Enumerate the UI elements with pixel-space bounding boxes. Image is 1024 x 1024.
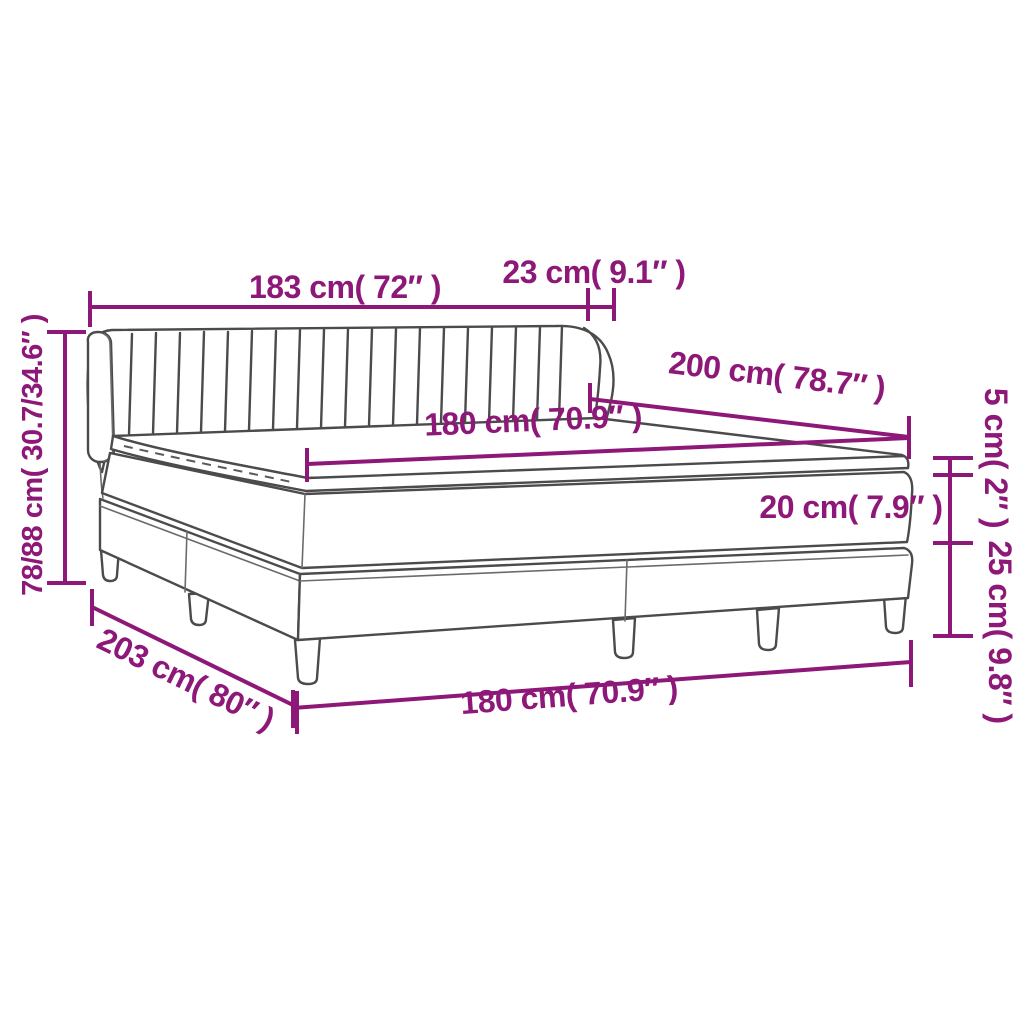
label-headboard-depth: 23 cm( 9.1″ ) — [502, 254, 685, 290]
label-topper-thickness: 5 cm( 2″ ) — [978, 388, 1014, 528]
leg-back-right — [884, 595, 906, 633]
leg-front-corner — [295, 638, 320, 684]
leg-front-middle — [613, 618, 635, 658]
label-headboard-width: 183 cm( 72″ ) — [249, 269, 441, 305]
label-headboard-height: 78/88 cm( 30.7/34.6″ ) — [17, 314, 49, 596]
label-base-height: 25 cm( 9.8″ ) — [982, 540, 1018, 723]
dim-headboard-height: 78/88 cm( 30.7/34.6″ ) — [17, 314, 86, 596]
label-base-width: 180 cm( 70.9″ ) — [459, 669, 679, 721]
dim-headboard-width: 183 cm( 72″ ) 23 cm( 9.1″ ) — [88, 254, 686, 327]
label-total-length: 203 cm( 80″ ) — [92, 621, 280, 738]
label-bed-length: 200 cm( 78.7″ ) — [667, 344, 887, 406]
diagram-canvas: 183 cm( 72″ ) 23 cm( 9.1″ ) 78/88 cm( 30… — [0, 0, 1024, 1024]
dim-base-width: 180 cm( 70.9″ ) — [293, 640, 911, 728]
bed-dimension-diagram: 183 cm( 72″ ) 23 cm( 9.1″ ) 78/88 cm( 30… — [0, 0, 1024, 1024]
label-mattress-thickness: 20 cm( 7.9″ ) — [759, 489, 942, 525]
leg-front-right — [757, 608, 779, 650]
